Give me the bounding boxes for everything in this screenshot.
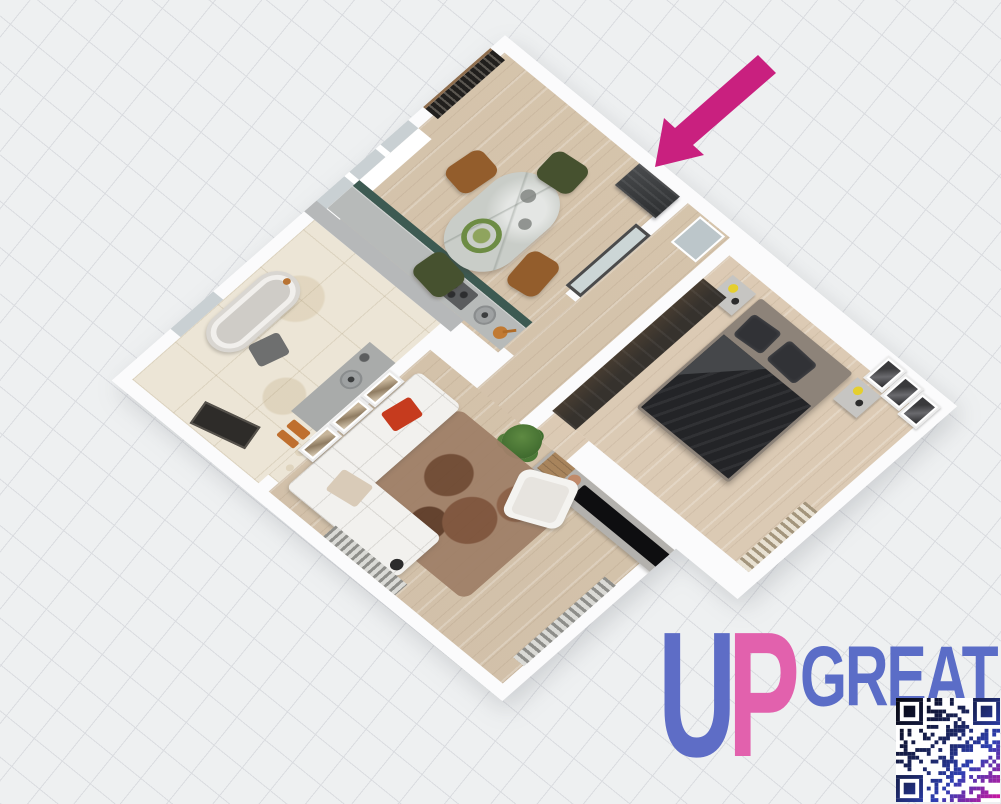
qr-code — [896, 698, 1000, 802]
annotation-arrow — [635, 52, 785, 182]
speaker — [669, 578, 685, 592]
logo-letter-p: P — [728, 596, 792, 795]
logo-up: UP — [658, 606, 791, 785]
logo-letter-u: U — [658, 596, 728, 795]
design-canvas-grid: UP GREAT — [0, 0, 1001, 804]
